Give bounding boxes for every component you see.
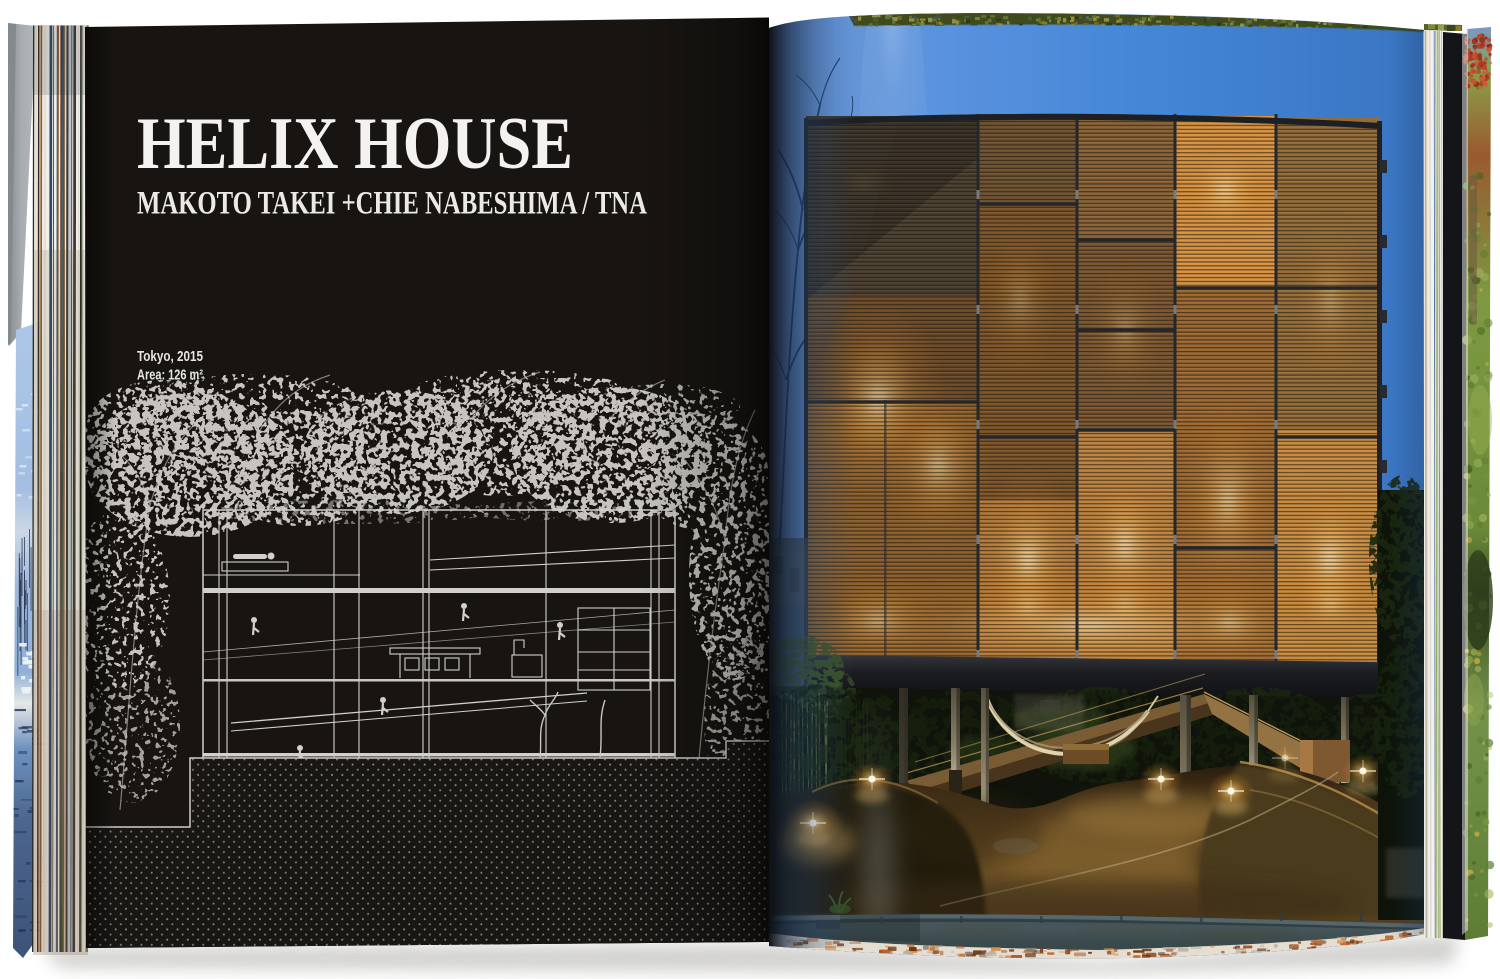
- svg-text:MAKOTO TAKEI +CHIE NABESHIMA /: MAKOTO TAKEI +CHIE NABESHIMA / TNA: [137, 186, 647, 222]
- svg-text:Tokyo, 2015: Tokyo, 2015: [137, 349, 203, 365]
- svg-text:HELIX HOUSE: HELIX HOUSE: [137, 103, 573, 185]
